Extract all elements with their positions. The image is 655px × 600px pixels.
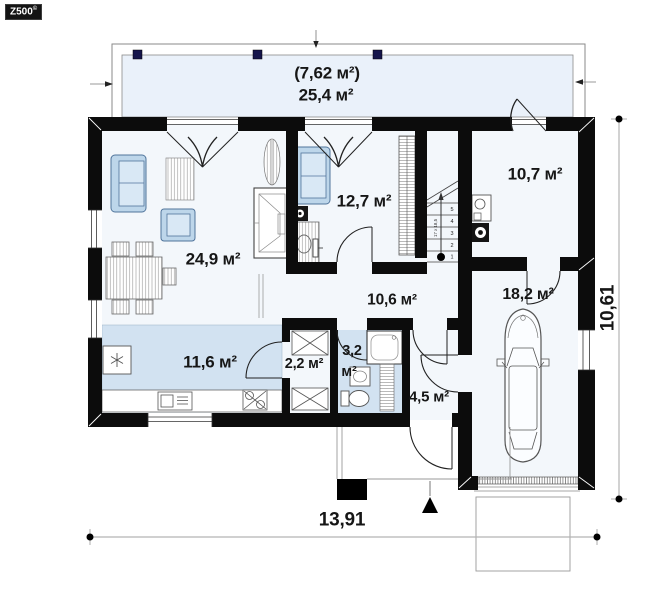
living-room-area: 24,9 м²: [186, 251, 241, 268]
door-entrance: [410, 427, 452, 469]
garage-gate: [478, 477, 578, 484]
plant: [264, 139, 280, 185]
vestibule-area: 4,5 м²: [409, 390, 449, 405]
window-kitchen: [148, 413, 212, 427]
garage-threshold: [474, 487, 580, 491]
stair-step-number: 4: [450, 219, 453, 225]
window-left-2: [88, 300, 102, 338]
dimension-width-label: 13,91: [319, 511, 366, 530]
toilet: [341, 391, 369, 407]
logo: Z500©: [5, 4, 42, 20]
terrace-column: [133, 50, 142, 59]
stair-step-number: 2: [450, 243, 453, 249]
stair-step-number: 1: [450, 255, 453, 261]
terrace-column: [373, 50, 382, 59]
terrace-area: 25,4 м²: [299, 87, 354, 104]
window-garage: [578, 330, 595, 370]
washbasin: [472, 195, 491, 221]
logo-text: Z500: [10, 6, 33, 17]
terrace: [122, 50, 573, 117]
floor-plan-page: 5 4 3 2 1 17 x 18,5: [0, 0, 655, 600]
stair-step-number: 5: [450, 207, 453, 213]
sofa: [111, 155, 146, 212]
terrace-column: [253, 50, 262, 59]
stair-note: 17 x 18,5: [433, 218, 438, 237]
room12-area: 12,7 м²: [337, 193, 392, 210]
bathroom-area-unit: м²: [341, 365, 356, 380]
rug: [166, 158, 194, 200]
shower: [367, 331, 402, 364]
entrance-arrow: [422, 481, 438, 513]
driveway: [476, 497, 570, 571]
fridge: [103, 346, 131, 374]
armchair: [161, 209, 195, 241]
dimension-height-label: 10,61: [599, 285, 618, 332]
kitchen-area: 11,6 м²: [183, 354, 237, 371]
dimension-bottom: [87, 529, 601, 545]
garage-area: 18,2 м²: [502, 287, 553, 303]
porch-column: [337, 479, 367, 500]
wardrobe: [399, 136, 415, 255]
logo-copyright-mark: ©: [33, 6, 37, 12]
stair-step-number: 3: [450, 231, 453, 237]
fireplace: [254, 188, 290, 258]
towel-radiator: [380, 364, 394, 411]
pantry-area: 2,2 м²: [285, 357, 324, 372]
room10-area: 10,7 м²: [508, 166, 563, 183]
sofa-small: [293, 147, 330, 204]
bathroom-area-value: 3,2: [342, 344, 362, 359]
stove: [243, 390, 267, 410]
hall-area: 10,6 м²: [367, 292, 417, 308]
terrace-area-note: (7,62 м²): [294, 65, 360, 82]
utility-fittings: [472, 195, 491, 242]
kitchen-sink: [158, 392, 192, 410]
washing-machine: [472, 223, 489, 242]
window-left-1: [88, 210, 102, 248]
